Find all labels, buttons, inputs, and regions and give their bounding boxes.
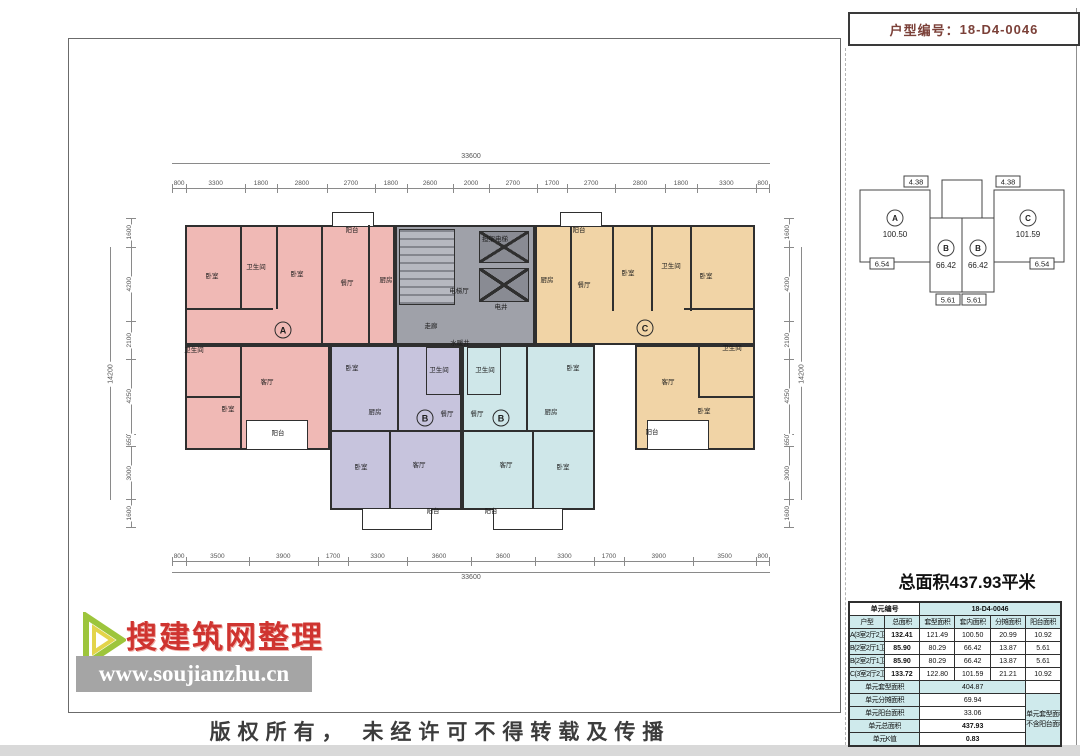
table-cell: 套内面积 bbox=[955, 616, 990, 629]
dim-segment: 650 bbox=[124, 434, 137, 446]
table-cell: B(2室2厅1卫) bbox=[849, 655, 884, 668]
dim-segment: 2800 bbox=[615, 176, 665, 189]
dim-total-left: 14200 bbox=[110, 247, 112, 500]
room-label: 卫生间 bbox=[246, 265, 266, 272]
wall-partition bbox=[276, 225, 278, 309]
table-note-line: 不含阳台面积 bbox=[1026, 720, 1060, 730]
keyplan-unit-area: 101.59 bbox=[1016, 230, 1041, 239]
room-label: 卧室 bbox=[346, 366, 359, 373]
unit-badge: A bbox=[275, 322, 292, 339]
dim-segment: 2800 bbox=[277, 176, 327, 189]
room-label: 客厅 bbox=[500, 463, 513, 470]
keyplan-unit-letter: A bbox=[892, 214, 898, 223]
wall-partition bbox=[397, 347, 399, 432]
dim-segment: 2600 bbox=[407, 176, 453, 189]
keyplan-unit-area: 66.42 bbox=[936, 261, 957, 270]
table-cell: 13.87 bbox=[990, 642, 1025, 655]
table-cell: 总面积 bbox=[884, 616, 919, 629]
keyplan-unit-letter: B bbox=[975, 244, 981, 253]
table-cell: A(3室2厅2卫) bbox=[849, 629, 884, 642]
table-cell: 80.29 bbox=[920, 655, 955, 668]
staircase bbox=[399, 229, 455, 305]
wall-partition bbox=[332, 430, 460, 432]
dim-segment: 3300 bbox=[697, 176, 756, 189]
room-label: 担架电梯 bbox=[482, 237, 508, 244]
wall-partition bbox=[690, 227, 692, 311]
room-label: 卧室 bbox=[206, 274, 219, 281]
wall-partition bbox=[464, 430, 593, 432]
table-cell: 户型 bbox=[849, 616, 884, 629]
table-cell: 85.90 bbox=[884, 655, 919, 668]
dim-segment: 1700 bbox=[537, 176, 567, 189]
balcony-b-right bbox=[493, 508, 563, 530]
table-cell: 20.99 bbox=[990, 629, 1025, 642]
dim-chain-top: 8003300180028002700180026002000270017002… bbox=[172, 176, 770, 189]
wall-partition bbox=[187, 308, 273, 310]
wall-partition bbox=[368, 225, 370, 343]
room-label: 阳台 bbox=[272, 431, 285, 438]
room-label: 卧室 bbox=[698, 409, 711, 416]
wall-partition bbox=[240, 347, 242, 448]
drawing-sheet: { "header": { "unit_code_label": "户型编号："… bbox=[0, 0, 1080, 756]
table-cell: 18-D4-0046 bbox=[920, 602, 1061, 616]
table-cell: 单元K值 bbox=[849, 733, 920, 747]
table-cell: 单元总面积 bbox=[849, 720, 920, 733]
room-label: 厨房 bbox=[369, 410, 382, 417]
room-label: 电井 bbox=[495, 305, 508, 312]
dim-segment: 800 bbox=[756, 549, 770, 562]
keyplan-unit-letter: C bbox=[1025, 214, 1031, 223]
room-label: 餐厅 bbox=[441, 412, 454, 419]
table-cell: 101.59 bbox=[955, 668, 990, 681]
dim-total-right-value: 14200 bbox=[799, 361, 806, 386]
room-label: 电梯厅 bbox=[449, 289, 469, 296]
table-cell: 单元分摊面积 bbox=[849, 694, 920, 707]
wall-partition bbox=[684, 308, 754, 310]
keyplan-dim-label: 4.38 bbox=[909, 178, 924, 187]
table-cell: 5.61 bbox=[1026, 655, 1061, 668]
table-cell: B(2室2厅1卫) bbox=[849, 642, 884, 655]
room-label: 卫生间 bbox=[429, 368, 449, 375]
dim-total-top: 33600 bbox=[172, 162, 770, 164]
balcony-b-left bbox=[362, 508, 432, 530]
room-label: 走廊 bbox=[425, 324, 438, 331]
room-label: 卧室 bbox=[557, 465, 570, 472]
table-cell: 69.94 bbox=[920, 694, 1026, 707]
keyplan-unit-letter: B bbox=[943, 244, 949, 253]
dim-chain-left: 160042002100425065030001600 bbox=[124, 218, 137, 528]
room-label: 卫生间 bbox=[475, 368, 495, 375]
wall-partition bbox=[240, 225, 242, 309]
table-cell: 单元编号 bbox=[849, 602, 920, 616]
dim-segment: 2700 bbox=[489, 176, 537, 189]
dim-segment: 3600 bbox=[407, 549, 471, 562]
unit-badge: C bbox=[637, 320, 654, 337]
wall-partition bbox=[187, 396, 240, 398]
dim-segment: 650 bbox=[782, 434, 795, 446]
dim-segment: 3000 bbox=[782, 446, 795, 499]
dim-total-right: 14200 bbox=[801, 247, 803, 500]
table-cell: 分摊面积 bbox=[990, 616, 1025, 629]
table-cell: 13.87 bbox=[990, 655, 1025, 668]
table-cell: 单元套型面积不含阳台面积 bbox=[1026, 694, 1061, 747]
dim-chain-bottom: 8003500390017003300360036003300170039003… bbox=[172, 549, 770, 562]
key-plan-drawing: 4.38 4.38 6.54 6.54 5.61 5.61 A 100.50 B… bbox=[856, 174, 1068, 312]
table-cell: 10.92 bbox=[1026, 668, 1061, 681]
unit-badge: B bbox=[417, 410, 434, 427]
dim-segment: 800 bbox=[756, 176, 770, 189]
table-cell: 404.87 bbox=[920, 681, 1026, 694]
dim-segment: 1600 bbox=[124, 218, 137, 247]
room-label: 餐厅 bbox=[578, 283, 591, 290]
table-cell bbox=[1026, 681, 1061, 694]
room-label: 客厅 bbox=[413, 463, 426, 470]
table-cell: 21.21 bbox=[990, 668, 1025, 681]
dim-total-left-value: 14200 bbox=[108, 361, 115, 386]
room-label: 阳台 bbox=[427, 509, 440, 516]
dim-segment: 1600 bbox=[782, 218, 795, 247]
room-label: 阳台 bbox=[646, 430, 659, 437]
dim-segment: 4250 bbox=[782, 359, 795, 435]
dim-segment: 1700 bbox=[318, 549, 348, 562]
room-label: 餐厅 bbox=[341, 281, 354, 288]
dim-chain-right: 160042002100425065030001600 bbox=[782, 218, 795, 528]
dim-segment: 3900 bbox=[249, 549, 318, 562]
dim-segment: 4250 bbox=[124, 359, 137, 435]
area-table: 单元编号18-D4-0046户型总面积套型面积套内面积分摊面积阳台面积A(3室2… bbox=[848, 601, 1062, 747]
room-label: 厨房 bbox=[380, 278, 393, 285]
table-cell: 阳台面积 bbox=[1026, 616, 1061, 629]
table-cell: 33.06 bbox=[920, 707, 1026, 720]
table-cell: 10.92 bbox=[1026, 629, 1061, 642]
dim-total-bottom: 33600 bbox=[172, 571, 770, 573]
wall-partition bbox=[698, 396, 754, 398]
dim-segment: 3900 bbox=[624, 549, 693, 562]
table-cell: 100.50 bbox=[955, 629, 990, 642]
table-cell: 80.29 bbox=[920, 642, 955, 655]
wall-partition bbox=[651, 227, 653, 311]
table-cell: 437.93 bbox=[920, 720, 1026, 733]
wall-partition bbox=[570, 227, 572, 343]
dim-segment: 1800 bbox=[665, 176, 697, 189]
table-cell: 单元阳台面积 bbox=[849, 707, 920, 720]
dim-segment: 2700 bbox=[567, 176, 615, 189]
dim-segment: 1700 bbox=[594, 549, 624, 562]
dim-segment: 1600 bbox=[782, 499, 795, 528]
dim-segment: 1800 bbox=[375, 176, 407, 189]
room-label: 卧室 bbox=[700, 274, 713, 281]
wall-partition bbox=[532, 432, 534, 508]
table-cell: 121.49 bbox=[920, 629, 955, 642]
room-label: 阳台 bbox=[573, 228, 586, 235]
room-label: 卧室 bbox=[222, 407, 235, 414]
table-cell: 133.72 bbox=[884, 668, 919, 681]
room-label: 卧室 bbox=[567, 366, 580, 373]
watermark-url: www.soujianzhu.cn bbox=[99, 661, 289, 687]
room-label: 餐厅 bbox=[471, 412, 484, 419]
dim-segment: 2100 bbox=[782, 321, 795, 358]
dim-segment: 2000 bbox=[453, 176, 489, 189]
keyplan-unit-area: 100.50 bbox=[883, 230, 908, 239]
dim-segment: 800 bbox=[172, 549, 186, 562]
dim-segment: 3300 bbox=[535, 549, 594, 562]
keyplan-dim-label: 5.61 bbox=[941, 296, 956, 305]
room-label: 卫生间 bbox=[722, 346, 742, 353]
key-plan: 4.38 4.38 6.54 6.54 5.61 5.61 A 100.50 B… bbox=[856, 174, 1068, 312]
table-cell: 66.42 bbox=[955, 642, 990, 655]
room-label: 厨房 bbox=[545, 410, 558, 417]
room-label: 阳台 bbox=[485, 509, 498, 516]
room-label: 客厅 bbox=[662, 380, 675, 387]
dim-segment: 3000 bbox=[124, 446, 137, 499]
wall-partition bbox=[526, 347, 528, 432]
room-label: 厨房 bbox=[541, 278, 554, 285]
keyplan-core-outline bbox=[942, 180, 982, 218]
room-label: 客厅 bbox=[261, 380, 274, 387]
wall-partition bbox=[698, 347, 700, 398]
total-area-caption: 总面积437.93平米 bbox=[862, 568, 1072, 593]
dim-total-top-value: 33600 bbox=[458, 153, 483, 160]
dim-segment: 800 bbox=[172, 176, 186, 189]
watermark-brand: 搜建筑网整理 bbox=[126, 612, 324, 657]
room-label: 卧室 bbox=[622, 271, 635, 278]
room-label: 卫生间 bbox=[661, 264, 681, 271]
room-label: 卧室 bbox=[291, 272, 304, 279]
copyright-text: 版权所有， 未经许可不得转载及传播 bbox=[140, 716, 740, 746]
dim-segment: 3600 bbox=[471, 549, 535, 562]
dim-segment: 2100 bbox=[124, 321, 137, 358]
dim-total-bottom-value: 33600 bbox=[458, 574, 483, 581]
elevator-shaft-lower bbox=[479, 268, 529, 302]
keyplan-unit-area: 66.42 bbox=[968, 261, 989, 270]
balcony-c-top bbox=[560, 212, 602, 227]
table-cell: 单元套型面积 bbox=[849, 681, 920, 694]
table-cell: 122.80 bbox=[920, 668, 955, 681]
wall-partition bbox=[389, 432, 391, 508]
room-label: 水暖井 bbox=[450, 341, 470, 348]
wall-partition bbox=[321, 225, 323, 343]
table-cell: 套型面积 bbox=[920, 616, 955, 629]
room-label: 卧室 bbox=[355, 465, 368, 472]
unit-badge: B bbox=[493, 410, 510, 427]
table-cell: 5.61 bbox=[1026, 642, 1061, 655]
dim-segment: 1800 bbox=[245, 176, 277, 189]
table-cell: 132.41 bbox=[884, 629, 919, 642]
dim-segment: 3300 bbox=[186, 176, 245, 189]
room-label: 卫生间 bbox=[184, 348, 204, 355]
watermark-url-bar: www.soujianzhu.cn bbox=[76, 656, 312, 692]
keyplan-dim-label: 6.54 bbox=[875, 260, 890, 269]
keyplan-dim-label: 4.38 bbox=[1001, 178, 1016, 187]
table-cell: C(3室2厅2卫) bbox=[849, 668, 884, 681]
dim-segment: 4200 bbox=[124, 247, 137, 322]
dim-segment: 3500 bbox=[186, 549, 248, 562]
table-cell: 85.90 bbox=[884, 642, 919, 655]
keyplan-dim-label: 6.54 bbox=[1035, 260, 1050, 269]
table-note-line: 单元套型面积 bbox=[1026, 710, 1060, 720]
table-cell: 66.42 bbox=[955, 655, 990, 668]
dim-segment: 2700 bbox=[327, 176, 375, 189]
keyplan-dim-label: 5.61 bbox=[967, 296, 982, 305]
dim-segment: 4200 bbox=[782, 247, 795, 322]
dim-segment: 3300 bbox=[348, 549, 407, 562]
room-label: 阳台 bbox=[346, 228, 359, 235]
dim-segment: 3500 bbox=[693, 549, 755, 562]
wall-partition bbox=[612, 227, 614, 311]
table-cell: 0.83 bbox=[920, 733, 1026, 747]
dim-segment: 1600 bbox=[124, 499, 137, 528]
